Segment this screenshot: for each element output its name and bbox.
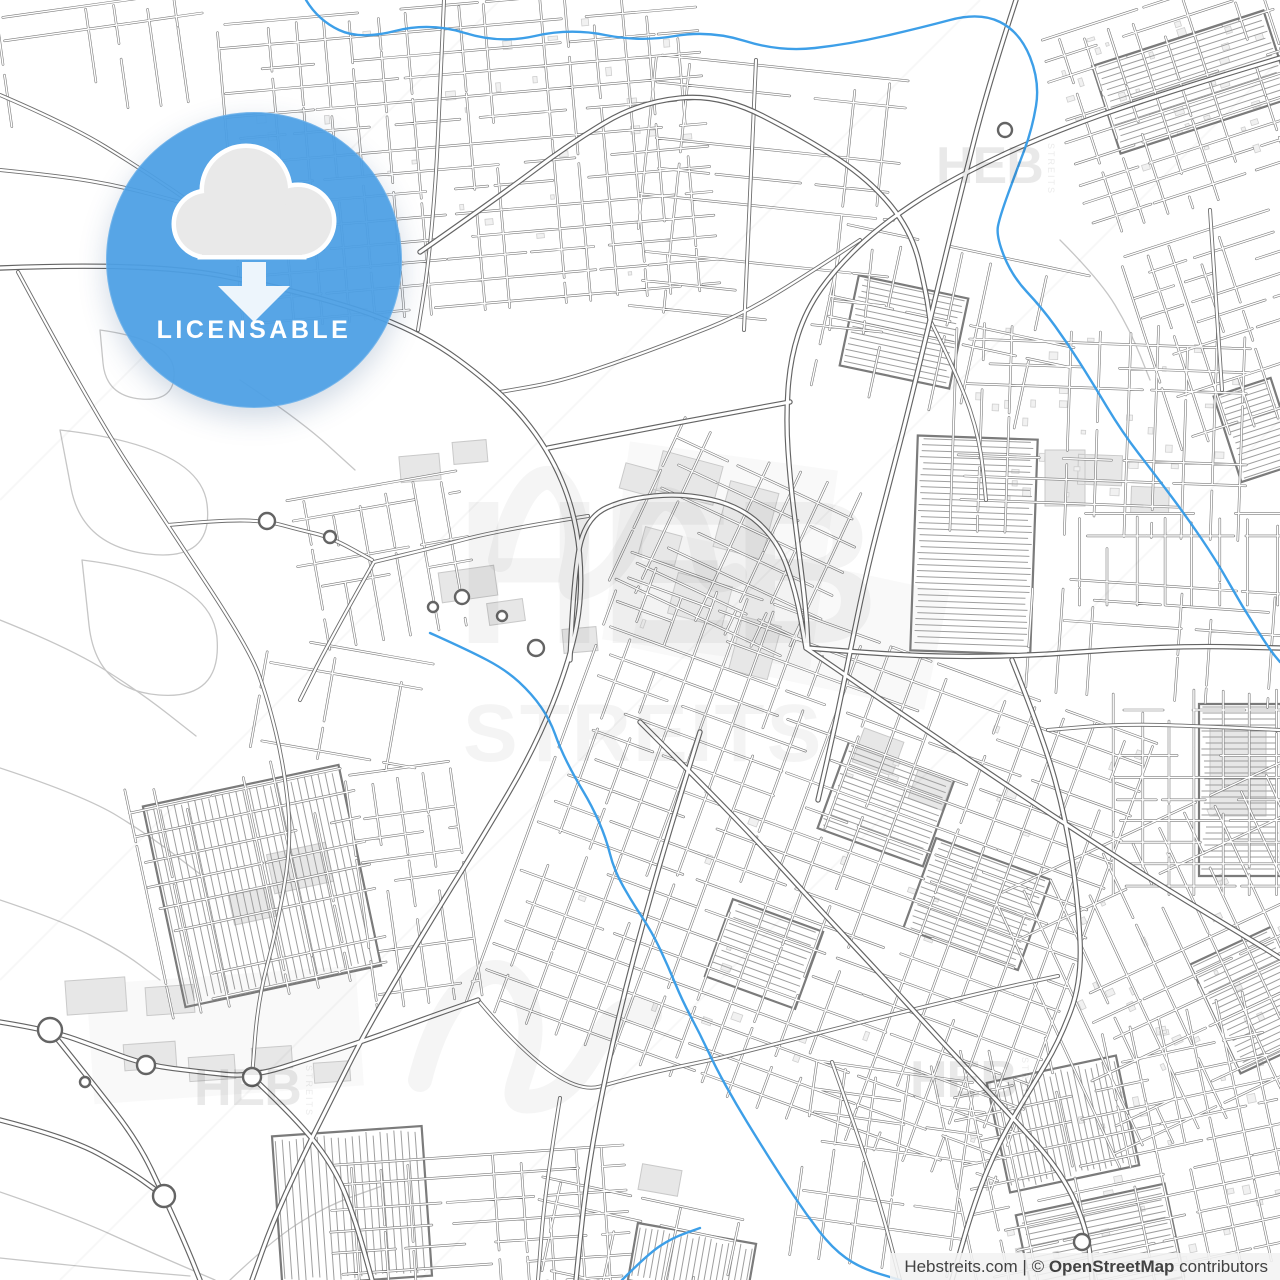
- copyright-symbol: ©: [1032, 1257, 1049, 1277]
- site-link[interactable]: Hebstreits.com: [904, 1257, 1017, 1277]
- attribution-bar: Hebstreits.com | © OpenStreetMap contrib…: [890, 1253, 1280, 1280]
- attribution-divider: |: [1018, 1257, 1032, 1277]
- map-preview: HEB STREITS LICENSABLE: [0, 0, 1280, 1280]
- osm-link[interactable]: OpenStreetMap: [1049, 1257, 1175, 1277]
- download-arrow-icon: [218, 262, 290, 322]
- cloud-download-icon: [106, 112, 402, 408]
- licensable-badge: LICENSABLE: [106, 112, 402, 408]
- badge-label: LICENSABLE: [106, 316, 402, 345]
- attribution-contributors: contributors: [1174, 1257, 1268, 1277]
